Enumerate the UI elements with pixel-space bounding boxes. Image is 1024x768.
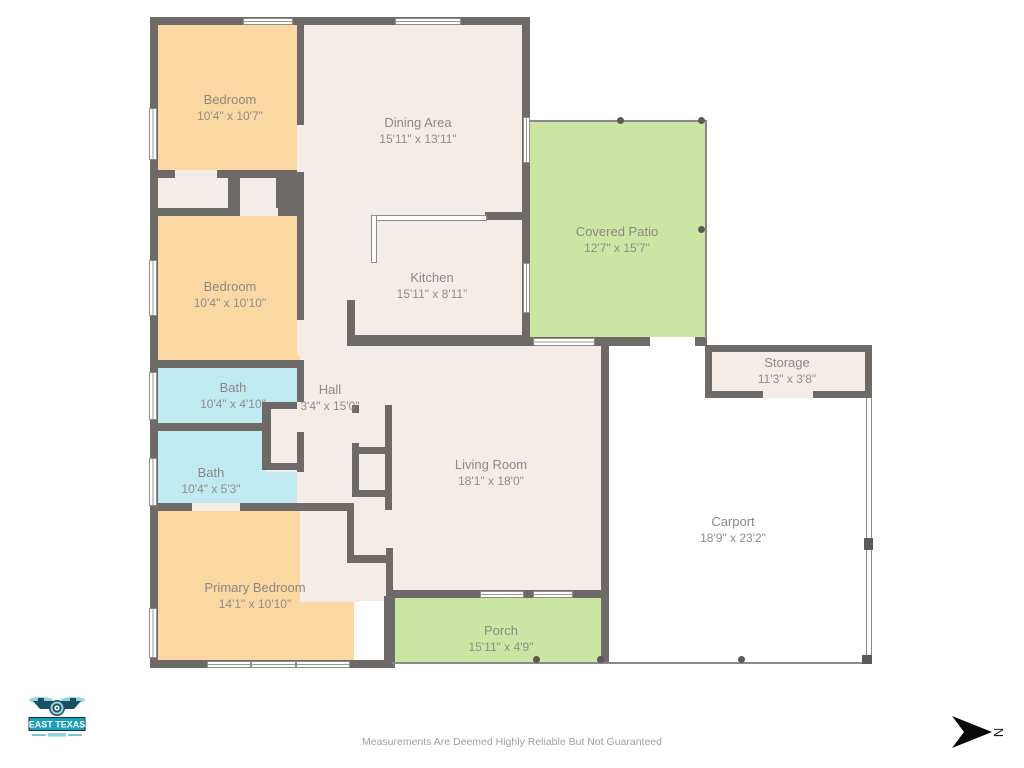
- room-name: Storage: [758, 355, 816, 371]
- room-label-patio: Covered Patio 12'7" x 15'7": [576, 224, 658, 256]
- room-dims: 14'1" x 10'10": [204, 596, 305, 612]
- room-label-bedroom2: Bedroom 10'4" x 10'10": [194, 279, 267, 311]
- door-gap-storage: [763, 391, 813, 398]
- door-gap-closet-top: [175, 170, 217, 178]
- window-dining-east: [523, 117, 530, 163]
- floor-plan-canvas: Bedroom 10'4" x 10'7" Dining Area 15'11"…: [0, 0, 1024, 768]
- room-label-kitchen: Kitchen 15'11" x 8'11": [397, 270, 468, 302]
- room-label-bedroom1: Bedroom 10'4" x 10'7": [197, 92, 263, 124]
- wall-storage-north: [705, 345, 872, 352]
- patio-edge-right: [705, 120, 707, 339]
- wall-kitchen-south: [347, 335, 530, 346]
- wall-closet-col-stub1: [352, 447, 392, 454]
- east-texas-drone-logo: EAST TEXAS: [28, 694, 86, 744]
- room-dims: 10'4" x 5'3": [181, 481, 240, 497]
- carport-post: [738, 656, 745, 663]
- patio-post: [617, 117, 624, 124]
- room-dims: 18'1" x 18'0": [455, 473, 527, 489]
- door-gap-bath2: [297, 472, 304, 503]
- room-dims: 11'3" x 3'8": [758, 371, 816, 387]
- svg-text:EAST TEXAS: EAST TEXAS: [29, 720, 86, 730]
- porch-post: [597, 656, 604, 663]
- room-label-living: Living Room 18'1" x 18'0": [455, 457, 527, 489]
- room-name: Covered Patio: [576, 224, 658, 240]
- wall-bath-divider: [158, 423, 268, 431]
- door-gap-closet-bottom: [240, 208, 278, 216]
- wall-hall-west-a: [297, 216, 304, 320]
- room-name: Dining Area: [379, 115, 456, 131]
- wall-top: [150, 17, 530, 25]
- room-label-bath2: Bath 10'4" x 5'3": [181, 465, 240, 497]
- patio-post: [698, 117, 705, 124]
- kitchen-counter-top: [371, 215, 487, 221]
- wall-bath1-north: [158, 360, 304, 368]
- carport-edge-right: [866, 398, 872, 664]
- room-name: Porch: [469, 623, 534, 639]
- room-dims: 10'4" x 10'7": [197, 108, 263, 124]
- window-bedroom1-top: [243, 18, 293, 25]
- wall-kitchen-north-partial: [485, 212, 526, 220]
- wall-closet-col-stub2: [352, 490, 392, 497]
- window-bath2-left: [149, 458, 157, 506]
- carport-side-post: [864, 538, 873, 550]
- window-kitchen-east: [523, 263, 530, 313]
- room-name: Carport: [700, 514, 766, 530]
- wall-living-east: [601, 338, 609, 663]
- wall-primary-east: [347, 503, 354, 563]
- room-label-porch: Porch 15'11" x 4'9": [469, 623, 534, 655]
- room-dims: 10'4" x 10'10": [194, 295, 267, 311]
- window-bedroom2-left: [149, 260, 157, 316]
- window-living-south-1: [480, 591, 524, 598]
- room-name: Kitchen: [397, 270, 468, 286]
- room-dims: 15'11" x 8'11": [397, 286, 468, 302]
- window-primary-bottom: [207, 661, 350, 668]
- north-label: N: [991, 728, 1006, 737]
- measurement-disclaimer: Measurements Are Deemed Highly Reliable …: [0, 736, 1024, 748]
- porch-edge-bottom: [392, 662, 609, 664]
- room-name: Bath: [181, 465, 240, 481]
- room-name: Bath: [200, 380, 266, 396]
- porch-post: [533, 656, 540, 663]
- room-name: Hall: [300, 382, 359, 398]
- wall-nook-left: [262, 402, 271, 470]
- window-dining-top: [395, 18, 461, 25]
- wall-primary-north: [158, 503, 354, 511]
- window-bedroom1-left: [149, 108, 157, 160]
- door-gap-bedroom1: [297, 125, 304, 172]
- room-dims: 18'9" x 23'2": [700, 530, 766, 546]
- room-name: Bedroom: [197, 92, 263, 108]
- window-living-south-2: [533, 591, 573, 598]
- window-patio-south: [533, 338, 595, 346]
- window-primary-left: [149, 608, 157, 658]
- wall-kitchen-west-stub: [347, 300, 355, 335]
- opening-patio-carport: [650, 337, 695, 346]
- room-label-primary: Primary Bedroom 14'1" x 10'10": [204, 580, 305, 612]
- window-mullion: [295, 661, 297, 668]
- room-label-bath1: Bath 10'4" x 4'10": [200, 380, 266, 412]
- wall-closet-south: [158, 208, 304, 216]
- door-gap-bedroom2: [297, 320, 304, 356]
- room-label-hall: Hall 3'4" x 15'0": [300, 382, 359, 414]
- room-dims: 12'7" x 15'7": [576, 240, 658, 256]
- room-dims: 15'11" x 13'11": [379, 131, 456, 147]
- room-name: Bedroom: [194, 279, 267, 295]
- carport-corner-post: [862, 655, 872, 664]
- room-label-storage: Storage 11'3" x 3'8": [758, 355, 816, 387]
- room-name: Living Room: [455, 457, 527, 473]
- room-label-dining: Dining Area 15'11" x 13'11": [379, 115, 456, 147]
- wall-porch-west: [384, 596, 395, 668]
- window-mullion: [250, 661, 252, 668]
- wall-closet-divider: [228, 172, 240, 212]
- room-name: Primary Bedroom: [204, 580, 305, 596]
- wall-bedroom1-east: [297, 25, 304, 125]
- room-dims: 10'4" x 4'10": [200, 396, 266, 412]
- room-dims: 3'4" x 15'0": [300, 398, 359, 414]
- patio-post: [698, 226, 705, 233]
- north-arrow-icon: [952, 716, 992, 748]
- door-gap-primary: [192, 503, 240, 511]
- room-dims: 15'11" x 4'9": [469, 639, 534, 655]
- wall-nook-bottom: [262, 463, 304, 470]
- window-bath1-left: [149, 372, 157, 420]
- kitchen-counter-side: [371, 215, 377, 263]
- room-label-carport: Carport 18'9" x 23'2": [700, 514, 766, 546]
